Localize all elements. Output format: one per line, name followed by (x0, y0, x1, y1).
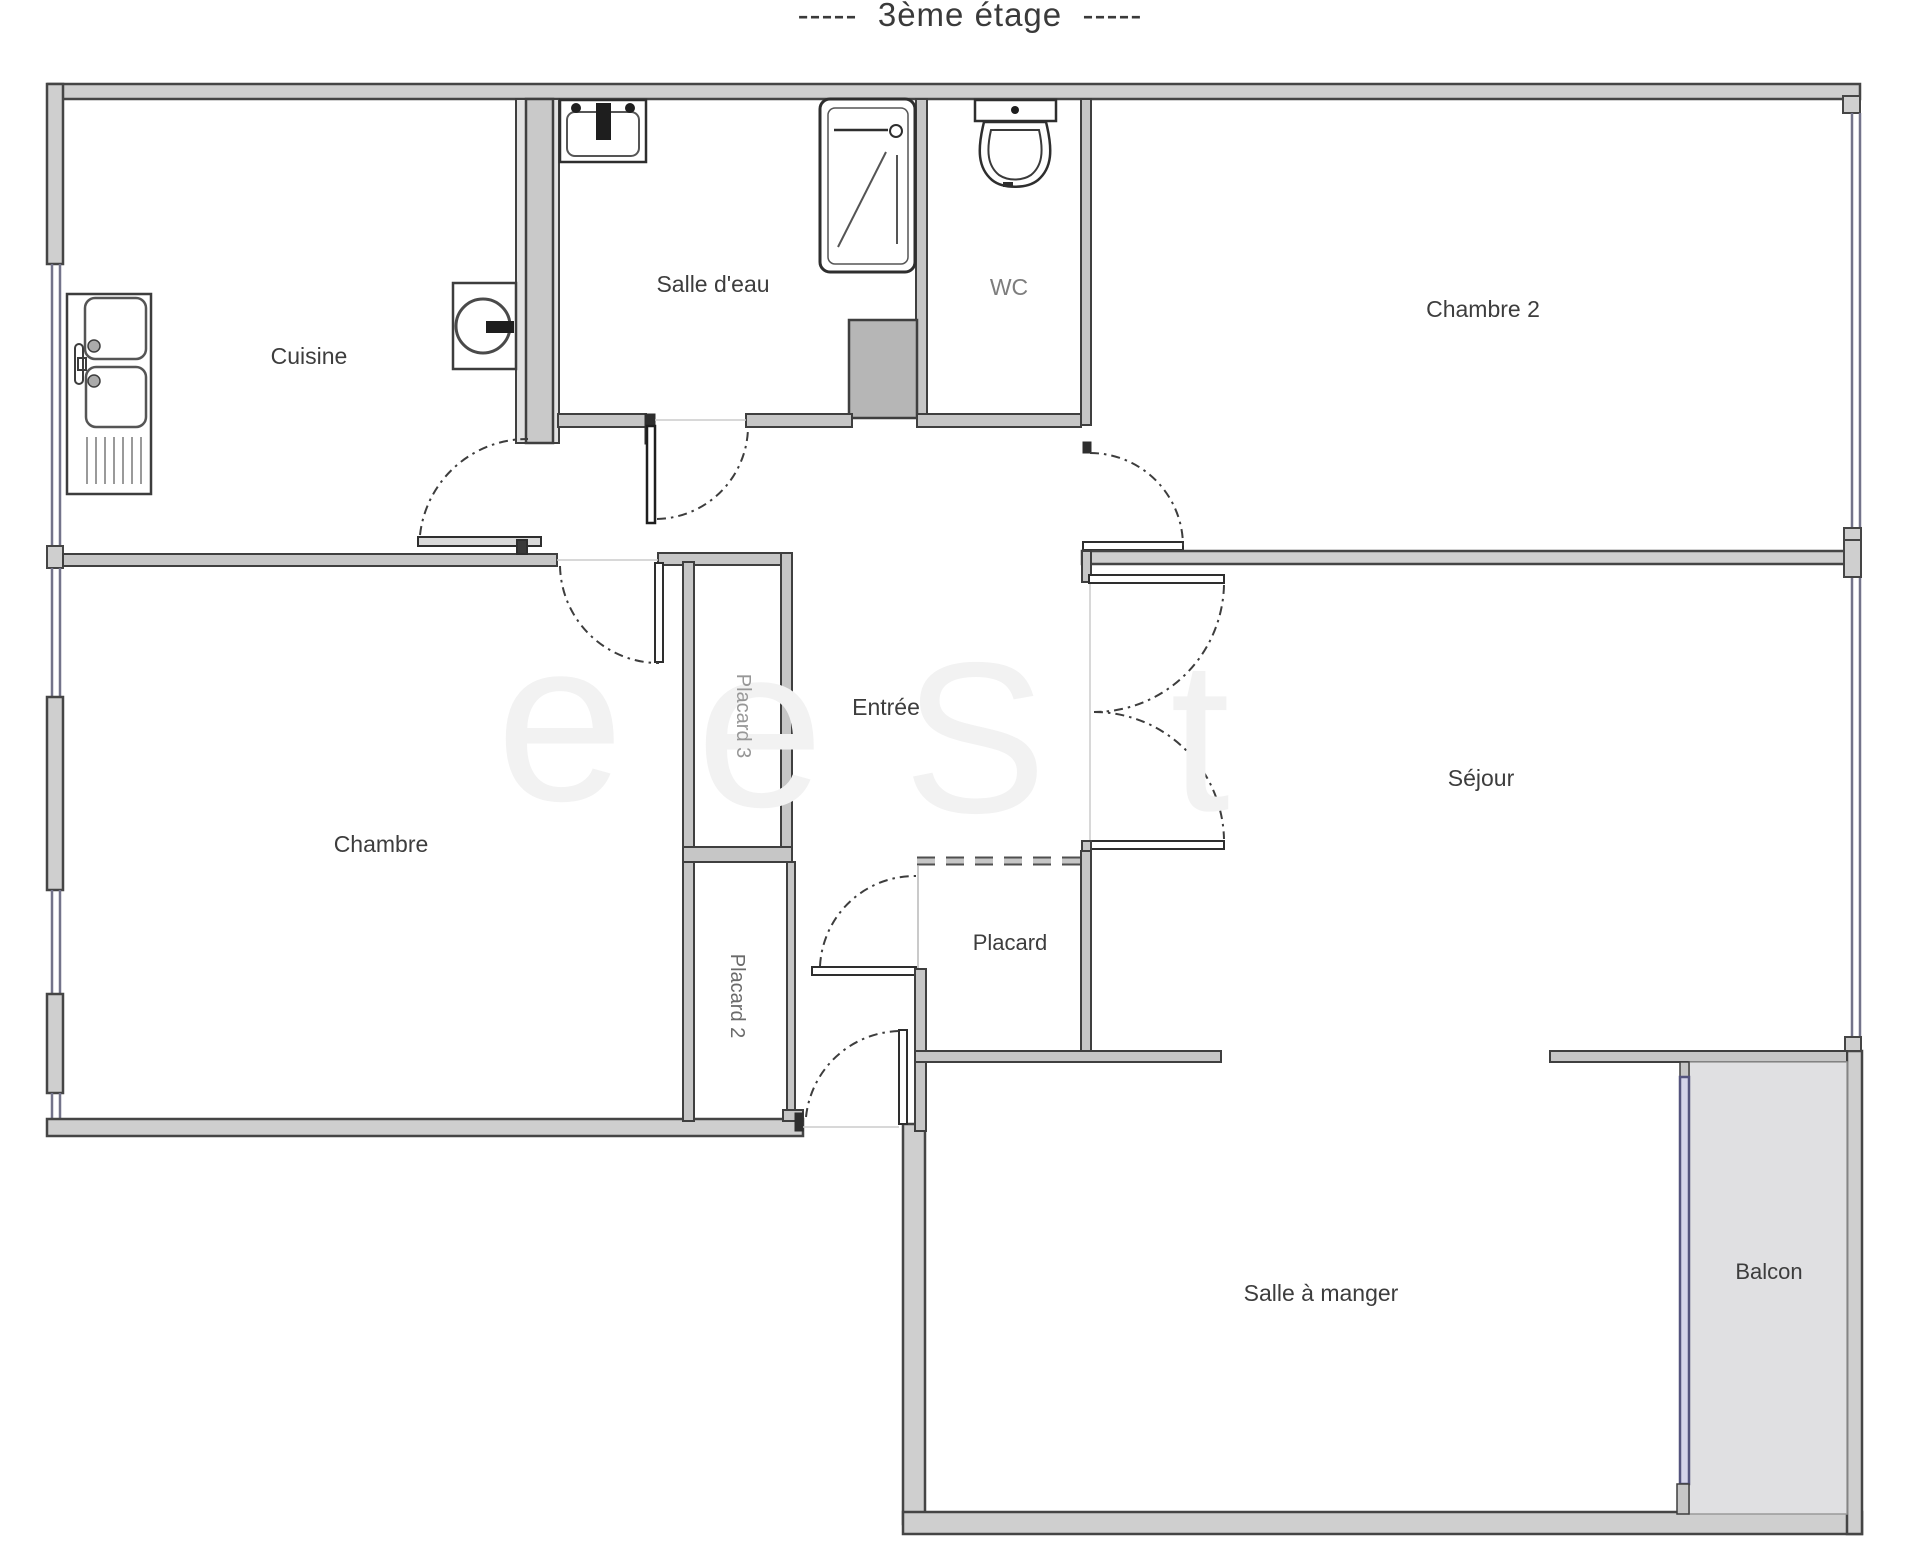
svg-text:Entrée: Entrée (852, 694, 920, 720)
svg-text:S: S (903, 617, 1046, 858)
svg-text:Placard 2: Placard 2 (726, 954, 748, 1039)
svg-text:Chambre 2: Chambre 2 (1426, 296, 1540, 322)
svg-text:e: e (696, 598, 824, 855)
svg-text:Salle d'eau: Salle d'eau (656, 271, 769, 297)
svg-text:Placard: Placard (973, 930, 1048, 955)
svg-text:----- 3ème étage -----: ----- 3ème étage ----- (798, 0, 1143, 33)
svg-text:Balcon: Balcon (1735, 1259, 1802, 1284)
svg-text:Chambre: Chambre (334, 831, 429, 857)
svg-text:Salle à manger: Salle à manger (1244, 1280, 1399, 1306)
svg-text:Cuisine: Cuisine (271, 343, 348, 369)
svg-text:t: t (1170, 615, 1230, 856)
svg-text:Séjour: Séjour (1448, 765, 1515, 791)
svg-text:e: e (496, 592, 624, 849)
svg-text:Placard 3: Placard 3 (732, 674, 754, 759)
svg-text:WC: WC (990, 274, 1028, 300)
